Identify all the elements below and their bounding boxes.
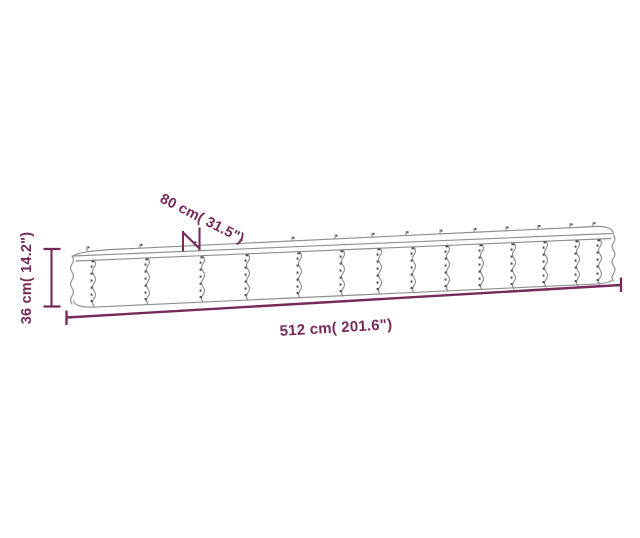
width-dimension-line — [183, 228, 200, 252]
dimension-diagram: 36 cm( 14.2") 80 cm( 31.5") 512 cm( 201.… — [0, 0, 640, 538]
planter-rivets — [91, 239, 601, 302]
planter-rim-seam-dots — [88, 223, 596, 247]
planter-drawing — [71, 223, 616, 308]
planter-rim-seam-ticks — [87, 223, 593, 251]
height-dimension-label: 36 cm( 14.2") — [19, 232, 35, 325]
planter-left-corrugated-edge — [71, 256, 74, 304]
planter-right-corrugated-edge — [612, 235, 615, 281]
height-dimension-line — [44, 249, 61, 307]
planter-bottom-edge — [74, 281, 612, 308]
planter-rim-front-edge — [73, 234, 612, 257]
planter-rim-back-edge — [73, 226, 614, 256]
planter-diagram-svg — [0, 0, 640, 538]
length-dimension-line — [67, 278, 622, 326]
